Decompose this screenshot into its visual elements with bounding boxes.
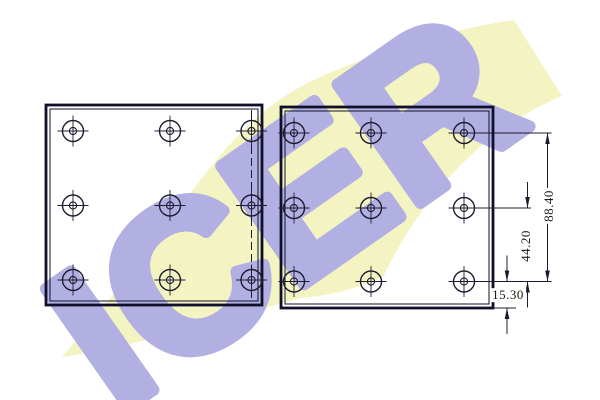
dimension-label-88-40: 88.40 [542,188,556,224]
drawing-svg: ICER [0,0,600,400]
dimension-label-44-20: 44.20 [519,228,533,264]
dimension-arrow-up [525,282,530,293]
brake-lining-technical-drawing: ICER 88.40 44.20 15.30 [0,0,600,400]
dimension-arrow-down [545,271,550,282]
icer-logo-text: ICER [8,0,560,400]
dimension-arrow-down [505,271,510,282]
dimension-arrow-up [505,308,510,319]
dimension-arrow-up [545,133,550,144]
dimension-label-15-30: 15.30 [490,288,526,302]
dimension-arrow-down [525,197,530,208]
